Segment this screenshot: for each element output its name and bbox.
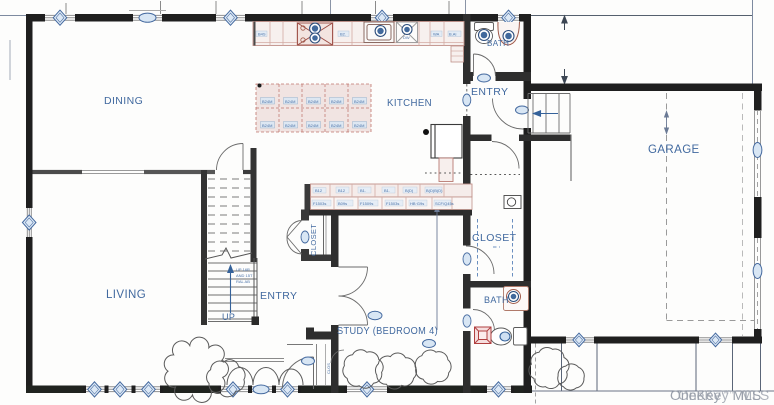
svg-text:F1509s: F1509s: [360, 201, 373, 206]
svg-text:B24M: B24M: [354, 99, 364, 104]
svg-text:B24M: B24M: [285, 123, 295, 128]
svg-text:B24M: B24M: [308, 99, 318, 104]
svg-text:WA: WA: [433, 32, 440, 37]
svg-text:B4S: B4S: [258, 32, 266, 37]
svg-text:CLOS: CLOS: [326, 363, 331, 374]
svg-text:UP: UP: [222, 312, 235, 322]
svg-text:B24M: B24M: [285, 99, 295, 104]
svg-text:B12: B12: [338, 188, 346, 193]
svg-text:STUDY (BEDROOM 4): STUDY (BEDROOM 4): [337, 325, 438, 337]
svg-text:KITCHEN: KITCHEN: [387, 97, 432, 109]
svg-text:B24M: B24M: [331, 123, 341, 128]
svg-text:B24M: B24M: [331, 99, 341, 104]
svg-text:B09s: B09s: [338, 201, 347, 206]
svg-text:GARAGE: GARAGE: [648, 144, 700, 156]
svg-text:B1.: B1.: [360, 188, 366, 193]
svg-text:RAL AB: RAL AB: [236, 279, 250, 284]
svg-text:DINING: DINING: [104, 95, 143, 107]
svg-text:BATH: BATH: [484, 295, 509, 305]
svg-text:B(D)B(D): B(D)B(D): [426, 188, 443, 193]
svg-text:UP 16R: UP 16R: [236, 267, 250, 272]
svg-text:SCF/Q45s: SCF/Q45s: [435, 201, 454, 206]
svg-text:B.Ai: B.Ai: [449, 32, 456, 37]
svg-text:F1503s: F1503s: [386, 201, 399, 206]
svg-text:B24M: B24M: [262, 99, 272, 104]
svg-text:DW: DW: [403, 35, 410, 40]
svg-text:LIVING: LIVING: [106, 289, 146, 301]
svg-text:ENTRY: ENTRY: [471, 86, 508, 98]
svg-text:B24M: B24M: [262, 123, 272, 128]
svg-text:BATH: BATH: [487, 39, 509, 48]
svg-text:B(D): B(D): [405, 188, 414, 193]
svg-text:OneKey™ MLS: OneKey™ MLS: [678, 387, 769, 403]
svg-text:B1.: B1.: [384, 188, 390, 193]
svg-text:B24M: B24M: [308, 123, 318, 128]
svg-text:AND 15T: AND 15T: [236, 273, 253, 278]
svg-text:B2.: B2.: [340, 32, 346, 37]
svg-text:F1503s: F1503s: [313, 201, 326, 206]
svg-text:B24M: B24M: [354, 123, 364, 128]
svg-text:CLOSET: CLOSET: [472, 232, 517, 244]
svg-text:B12: B12: [315, 188, 323, 193]
svg-text:HB·G9s: HB·G9s: [410, 201, 424, 206]
svg-text:CLOSET: CLOSET: [309, 224, 318, 256]
svg-text:ENTRY: ENTRY: [260, 290, 297, 302]
